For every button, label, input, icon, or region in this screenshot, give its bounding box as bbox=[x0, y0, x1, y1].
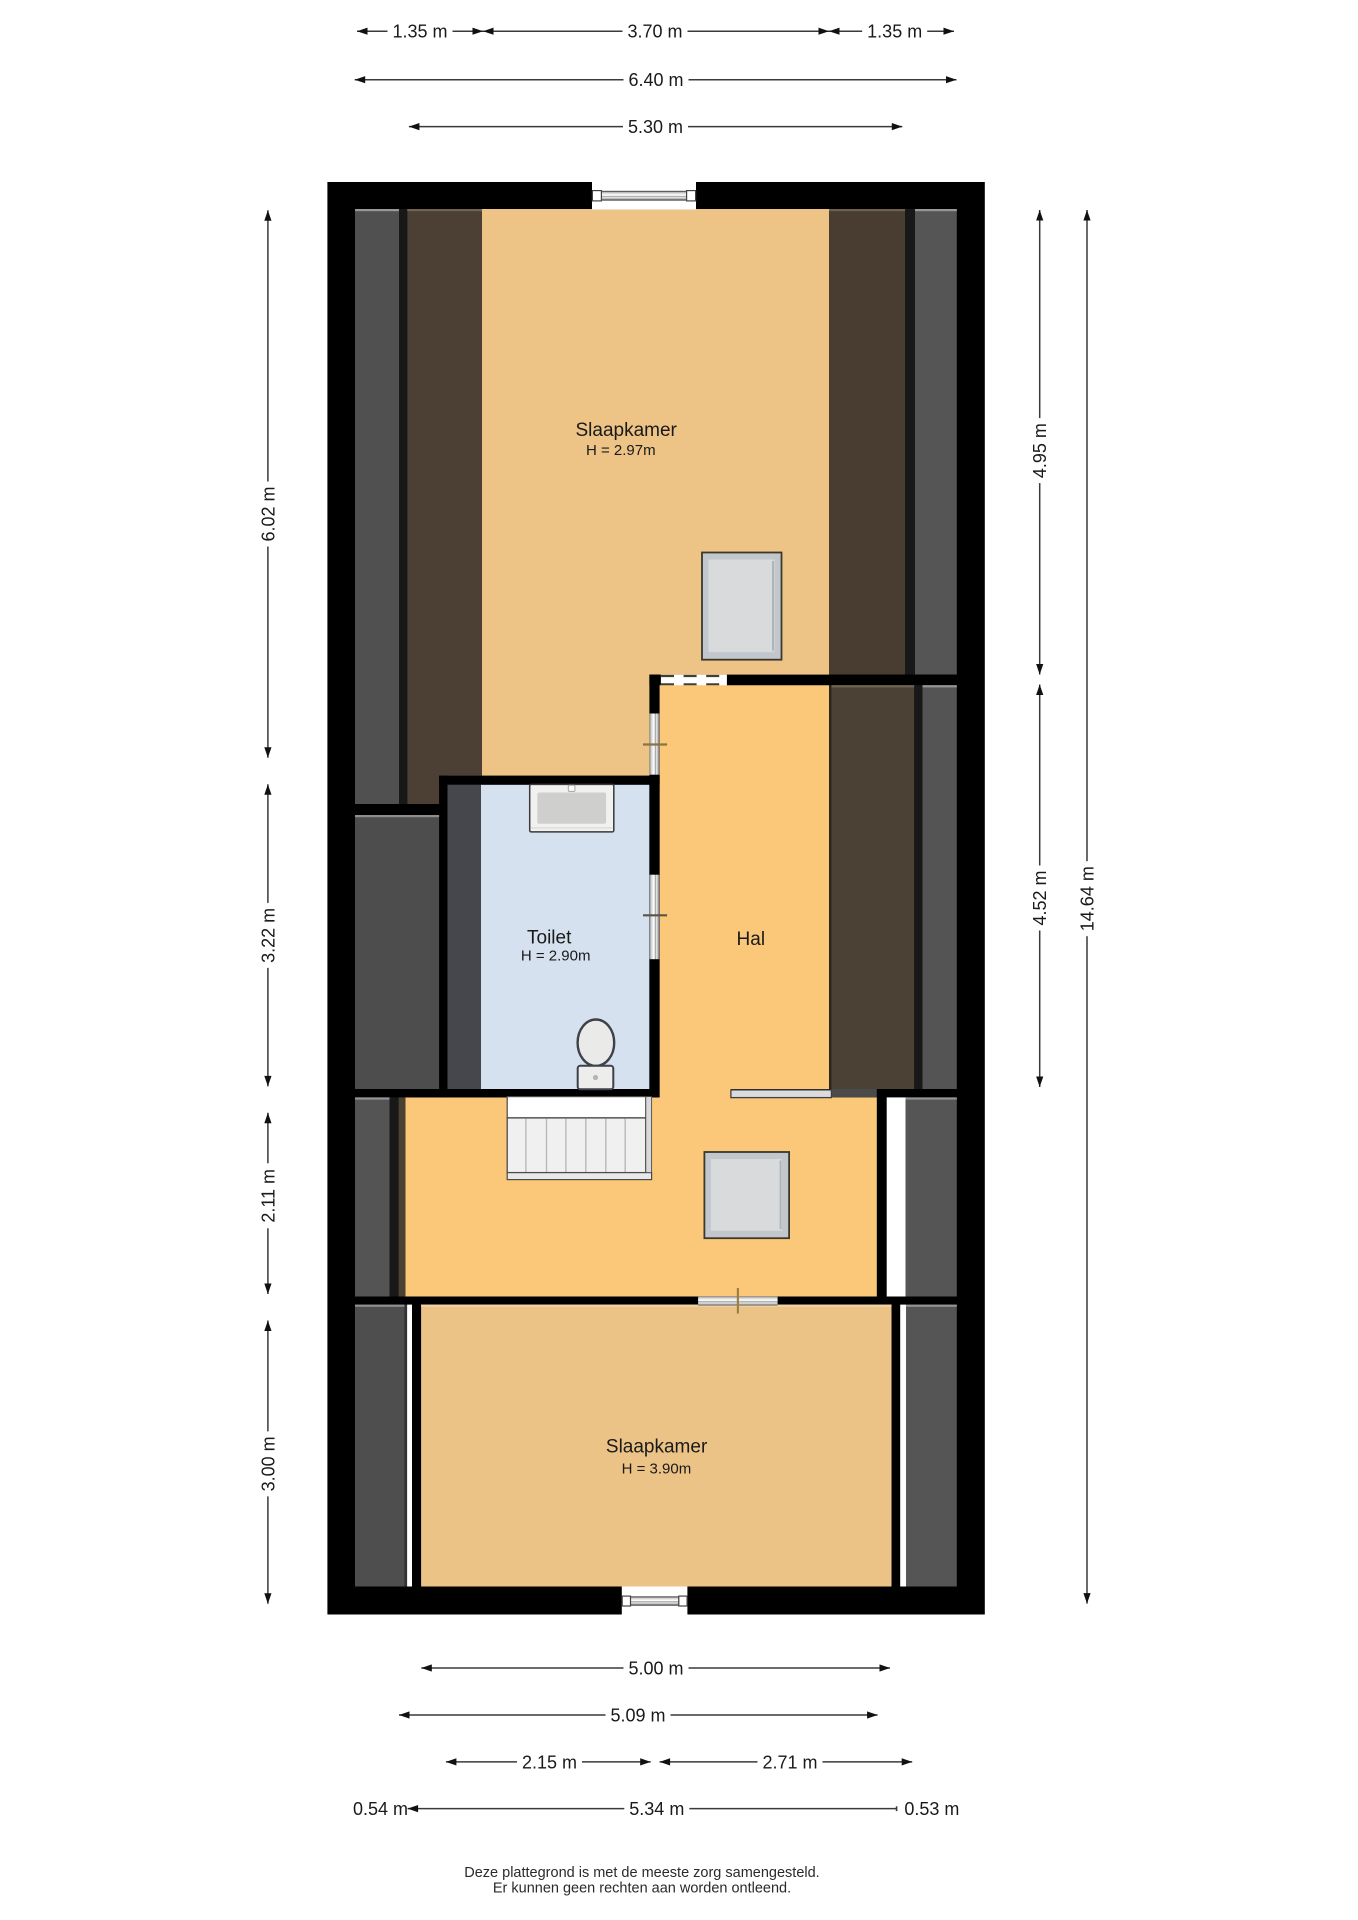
svg-text:2.71 m: 2.71 m bbox=[762, 1752, 817, 1772]
svg-text:Deze plattegrond is met de mee: Deze plattegrond is met de meeste zorg s… bbox=[464, 1865, 819, 1881]
svg-text:0.53 m: 0.53 m bbox=[904, 1799, 959, 1819]
svg-text:6.40 m: 6.40 m bbox=[628, 70, 683, 90]
svg-text:Toilet: Toilet bbox=[527, 928, 572, 949]
svg-text:5.30 m: 5.30 m bbox=[628, 117, 683, 137]
svg-text:2.15 m: 2.15 m bbox=[522, 1752, 577, 1772]
svg-text:5.09 m: 5.09 m bbox=[610, 1705, 665, 1725]
svg-text:0.54 m: 0.54 m bbox=[353, 1799, 408, 1819]
svg-text:6.02 m: 6.02 m bbox=[258, 486, 278, 541]
svg-text:Slaapkamer: Slaapkamer bbox=[576, 420, 678, 441]
svg-text:4.52 m: 4.52 m bbox=[1030, 870, 1050, 925]
svg-text:14.64 m: 14.64 m bbox=[1077, 866, 1097, 931]
svg-text:2.11 m: 2.11 m bbox=[258, 1169, 278, 1223]
svg-text:4.95 m: 4.95 m bbox=[1030, 423, 1050, 478]
svg-text:1.35 m: 1.35 m bbox=[867, 22, 922, 42]
svg-text:3.22 m: 3.22 m bbox=[258, 908, 278, 963]
svg-text:Er kunnen geen rechten aan wor: Er kunnen geen rechten aan worden ontlee… bbox=[493, 1881, 791, 1897]
svg-text:H = 2.90m: H = 2.90m bbox=[521, 948, 591, 965]
svg-text:H = 2.97m: H = 2.97m bbox=[586, 442, 656, 459]
svg-text:Slaapkamer: Slaapkamer bbox=[606, 1436, 708, 1457]
svg-text:5.00 m: 5.00 m bbox=[628, 1658, 683, 1678]
svg-text:3.00 m: 3.00 m bbox=[258, 1436, 278, 1491]
svg-text:5.34 m: 5.34 m bbox=[629, 1799, 684, 1819]
svg-text:1.35 m: 1.35 m bbox=[392, 22, 447, 42]
svg-text:H = 3.90m: H = 3.90m bbox=[622, 1461, 692, 1478]
svg-text:Hal: Hal bbox=[737, 929, 766, 950]
svg-text:3.70 m: 3.70 m bbox=[627, 22, 682, 42]
